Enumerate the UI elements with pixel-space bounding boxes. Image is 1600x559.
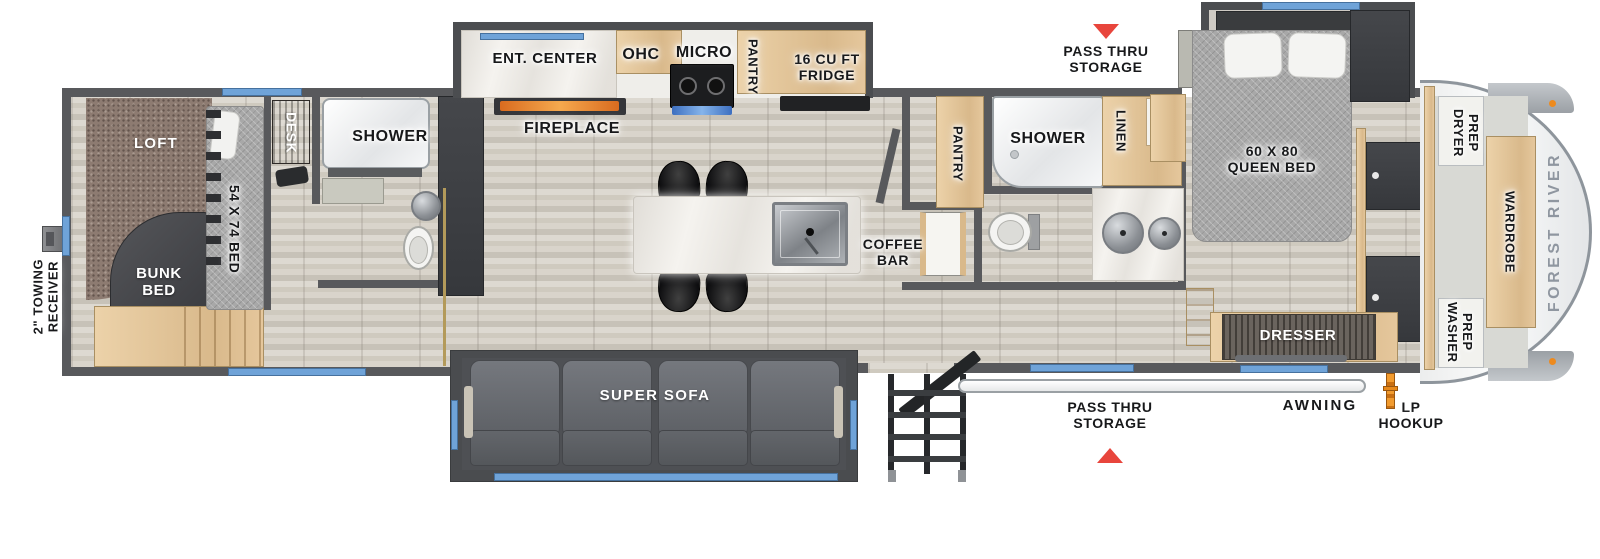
rear-shower-label: SHOWER	[340, 128, 440, 146]
ohc-label: OHC	[610, 46, 672, 64]
wall-bunkroom	[264, 96, 271, 310]
sofa-seat-cushion-3	[658, 430, 748, 466]
rear-shower-ledge	[328, 168, 422, 177]
rear-toilet-seat	[409, 236, 428, 264]
sofa-back-cushion-4	[750, 360, 840, 438]
loft-ladder	[206, 110, 221, 272]
kitchen-slide-wall-top	[453, 22, 873, 30]
cap-marker-light-top	[1549, 100, 1556, 107]
hall-cabinet	[1150, 94, 1186, 162]
wall-rearbath-bottom	[318, 280, 450, 288]
chest-top-handle	[1372, 172, 1379, 179]
ent-center-window	[480, 33, 584, 40]
washer-prep-label: WASHER PREP	[1444, 294, 1474, 370]
sofa-window-right	[850, 400, 857, 450]
wall-midbath-inner	[974, 202, 982, 290]
sofa-armrest-left	[464, 386, 473, 438]
rear-steps-treads	[184, 307, 263, 366]
lp-hookup-label: LP HOOKUP	[1371, 400, 1451, 431]
burner-right	[707, 77, 725, 95]
step-rung-2	[888, 412, 966, 418]
pass-thru-top-label: PASS THRU STORAGE	[1051, 44, 1161, 75]
island-faucet	[806, 228, 814, 236]
window-bed-slide	[1262, 2, 1360, 10]
bath-shower-label: SHOWER	[998, 130, 1098, 148]
ent-center-label: ENT. CENTER	[478, 51, 612, 68]
fridge-label: 16 CU FT FRIDGE	[785, 52, 869, 83]
fireplace-label: FIREPLACE	[505, 120, 639, 138]
rear-sink	[411, 191, 441, 221]
window-bottom-hall	[1030, 364, 1134, 372]
bath-toilet-seat	[997, 220, 1024, 245]
kitchen-pantry-label: PANTRY	[745, 34, 760, 100]
dryer-prep-label: DRYER PREP	[1450, 100, 1480, 166]
awning-bar	[958, 379, 1366, 393]
burner-left	[679, 77, 697, 95]
step-foot-right	[958, 470, 966, 482]
entry-doorway	[868, 363, 954, 373]
step-rung-1	[888, 390, 966, 396]
super-sofa-label: SUPER SOFA	[585, 388, 725, 405]
bath-pantry-label: PANTRY	[950, 112, 965, 196]
slide-door	[443, 188, 446, 366]
sofa-back-cushion-1	[470, 360, 560, 438]
bed54-label: 54 X 74 BED	[226, 158, 242, 300]
desk-label: DESK	[283, 102, 299, 164]
coffee-bar-label: COFFEE BAR	[853, 237, 933, 268]
bedroom-bench	[1235, 355, 1347, 362]
bunk-bed-label: BUNK BED	[128, 266, 190, 300]
pass-thru-bottom-label: PASS THRU STORAGE	[1055, 400, 1165, 431]
wall-rearbath-left	[312, 96, 320, 204]
towing-receiver-label: 2" TOWING RECEIVER	[31, 240, 60, 354]
sofa-window-bottom	[494, 473, 838, 481]
window-bottom-rear	[228, 368, 366, 376]
cap-marker-light-bottom	[1549, 358, 1556, 365]
floorplan: LOFT BUNK BED 54 X 74 BED DESK SHOWER EN…	[0, 0, 1600, 559]
loft-label: LOFT	[118, 136, 194, 153]
micro-label: MICRO	[672, 44, 736, 62]
step-rung-3	[888, 434, 966, 440]
chest-bottom-handle	[1372, 294, 1379, 301]
front-wall-strip	[1424, 86, 1435, 370]
step-rung-4	[888, 456, 966, 462]
bath-shower-drain	[1010, 150, 1019, 159]
window-top-rear	[222, 88, 302, 96]
sofa-seat-cushion-4	[750, 430, 840, 466]
entry-steps	[888, 374, 966, 476]
sofa-seat-cushion-1	[470, 430, 560, 466]
pass-thru-arrow-bottom	[1097, 448, 1123, 463]
pass-thru-arrow-top	[1093, 24, 1119, 39]
oven-light	[672, 106, 732, 115]
queen-pillow-right	[1287, 32, 1347, 79]
sofa-window-left	[451, 400, 458, 450]
bath-sink-right-drain	[1162, 231, 1167, 236]
bath-sink-left-drain	[1120, 230, 1126, 236]
wall-midbath-bottom	[902, 282, 1186, 290]
lp-pipe-flange	[1383, 386, 1398, 391]
fireplace	[500, 101, 619, 111]
kitchen-slide-wall-left	[453, 22, 461, 98]
sofa-seat-cushion-2	[562, 430, 652, 466]
wall-midbath-shower	[984, 96, 992, 194]
linen-label: LINEN	[1113, 98, 1128, 164]
dresser-label: DRESSER	[1248, 328, 1348, 345]
bedroom-wardrobe-top	[1350, 10, 1410, 102]
wardrobe-label: WARDROBE	[1502, 163, 1517, 301]
step-foot-left	[888, 470, 896, 482]
sofa-armrest-right	[834, 386, 843, 438]
window-left	[62, 216, 70, 256]
wall-midbath-left	[902, 96, 910, 208]
brand-label: FOREST RIVER	[1546, 147, 1566, 317]
queen-bed-label: 60 X 80 QUEEN BED	[1222, 144, 1322, 175]
window-bottom-bedroom	[1240, 365, 1328, 373]
awning-label: AWNING	[1255, 398, 1385, 415]
fridge-counter	[780, 96, 870, 111]
rear-vanity	[322, 178, 384, 204]
queen-pillow-left	[1223, 32, 1283, 79]
